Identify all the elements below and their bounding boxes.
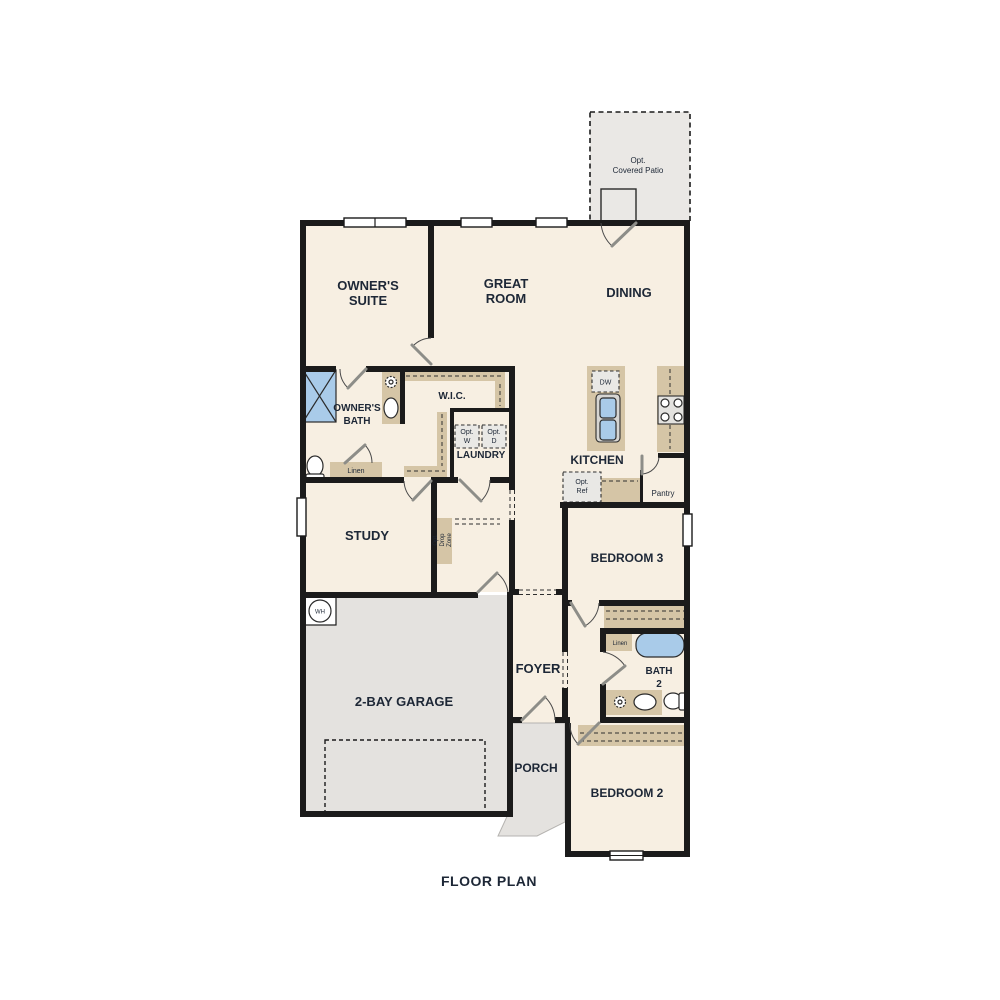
water-heater-label: WH bbox=[315, 610, 325, 616]
kitchen-counter-bottom bbox=[600, 478, 640, 502]
owners-suite-label: OWNER'S bbox=[337, 278, 399, 293]
owners-suite-label-2: SUITE bbox=[349, 293, 388, 308]
opt-dryer-label-2: D bbox=[491, 438, 496, 445]
opt-washer-box: Opt. W bbox=[455, 425, 479, 448]
garage-label: 2-BAY GARAGE bbox=[355, 694, 454, 709]
opt-washer-label: Opt. bbox=[460, 429, 473, 436]
patio-label: Opt. bbox=[630, 156, 645, 165]
great-room-label-2: ROOM bbox=[486, 291, 526, 306]
kitchen-label: KITCHEN bbox=[570, 453, 623, 467]
window-dining bbox=[536, 218, 567, 227]
opt-fridge-label: Opt. bbox=[575, 479, 588, 486]
toilet2-icon bbox=[664, 693, 687, 710]
drop-zone-line2: Drop bbox=[440, 533, 446, 547]
window-great-room bbox=[461, 218, 492, 227]
floor-plan-canvas: Opt. Covered Patio bbox=[0, 0, 1000, 1000]
dishwasher-label: DW bbox=[600, 380, 612, 387]
patio-area: Opt. Covered Patio bbox=[590, 112, 690, 223]
great-room-label: GREAT bbox=[484, 276, 529, 291]
opt-dryer-box: Opt. D bbox=[482, 425, 506, 448]
porch-label: PORCH bbox=[514, 761, 557, 775]
opt-fridge-label-2: Ref bbox=[577, 488, 588, 495]
dining-label: DINING bbox=[606, 285, 652, 300]
bedroom3-label: BEDROOM 3 bbox=[591, 551, 664, 565]
opt-washer-label-2: W bbox=[464, 438, 471, 445]
bath2-label-2: 2 bbox=[656, 679, 662, 690]
bathtub-icon bbox=[632, 630, 687, 660]
owners-bath-label-2: BATH bbox=[343, 416, 370, 427]
study-label: STUDY bbox=[345, 528, 389, 543]
owners-linen-label: Linen bbox=[347, 468, 364, 475]
plan-title: FLOOR PLAN bbox=[441, 873, 537, 889]
bath2-label: BATH bbox=[645, 666, 672, 677]
dishwasher-box: DW bbox=[592, 371, 619, 392]
laundry-label: LAUNDRY bbox=[457, 450, 506, 461]
island-sink-icon bbox=[596, 394, 620, 442]
pantry-label: Pantry bbox=[651, 489, 674, 498]
opt-dryer-label: Opt. bbox=[487, 429, 500, 436]
range-icon bbox=[658, 396, 684, 424]
foyer-label: FOYER bbox=[516, 661, 561, 676]
owners-bath-label: OWNER'S bbox=[333, 403, 381, 414]
water-heater-icon: WH bbox=[304, 597, 336, 625]
drop-zone-label: Opt. Drop Zone bbox=[433, 533, 453, 547]
drop-zone-line3: Zone bbox=[447, 533, 453, 547]
floor-plan-page: Opt. Covered Patio bbox=[0, 0, 1000, 1000]
window-study bbox=[297, 498, 306, 536]
bath2-linen-label: Linen bbox=[613, 641, 628, 647]
drop-zone-line1: Opt. bbox=[433, 534, 439, 546]
window-bedroom3 bbox=[683, 514, 692, 546]
opt-fridge-box: Opt. Ref bbox=[563, 472, 601, 502]
patio-label-2: Covered Patio bbox=[613, 166, 664, 175]
bedroom2-label: BEDROOM 2 bbox=[591, 786, 664, 800]
wic-label: W.I.C. bbox=[438, 391, 465, 402]
shower-icon bbox=[303, 370, 336, 422]
bedroom3-closet bbox=[604, 604, 686, 628]
